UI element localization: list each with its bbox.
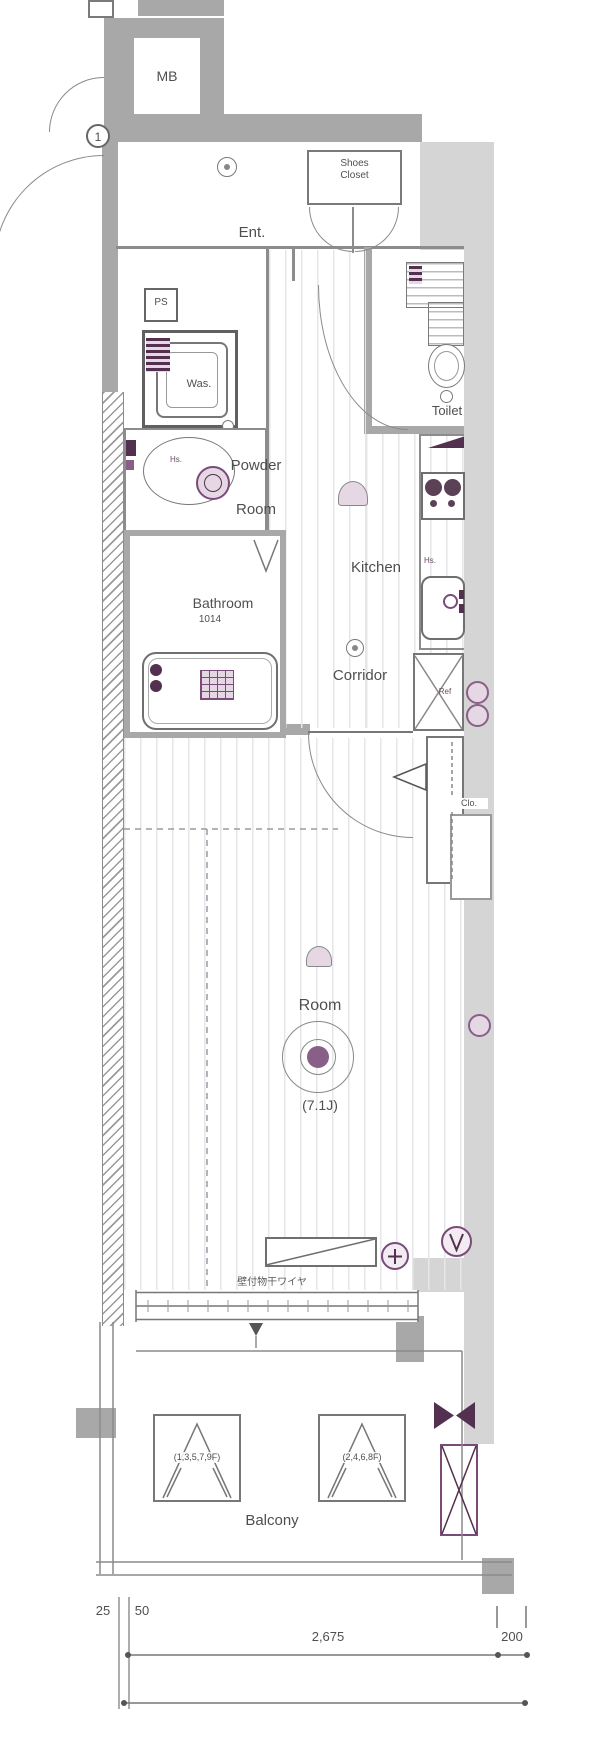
toilet-drain-icon [440, 390, 453, 403]
wall-balcony-corner [482, 1558, 514, 1594]
dim-dot1 [125, 1652, 131, 1658]
washer-faucet-panel-icon [146, 338, 170, 372]
entry-marker-label: 1 [88, 130, 108, 144]
stove-knob2-icon [448, 500, 455, 507]
fridge-label: Ref [430, 687, 460, 697]
louver-right-floors-label: (2,4,6,8F) [320, 1452, 404, 1463]
wall-toilet-bottom [364, 426, 464, 434]
stove-knob1-icon [430, 500, 437, 507]
toilet-bowl-inner-icon [434, 351, 459, 381]
dim-dot3 [524, 1652, 530, 1658]
room-label-corridor: Corridor [308, 667, 412, 685]
shoes-closet-door-center [352, 207, 354, 253]
wall-top-left-notch [88, 0, 114, 18]
vent-bowtie-left-icon [434, 1402, 454, 1429]
wall-top-band [104, 114, 422, 142]
dim-label-right-width: 200 [492, 1629, 532, 1645]
hot-water-label-powder: Hs. [162, 455, 190, 465]
dim-dot2 [495, 1652, 501, 1658]
room-label-shoes-closet: Shoes Closet [309, 158, 400, 182]
sink-faucet-icon [443, 594, 458, 609]
outlet-icon [381, 1242, 409, 1270]
room-label-ps: PS [144, 297, 178, 309]
dim-label-left-offset: 25 [89, 1603, 117, 1619]
wall-vent3-icon [468, 1014, 491, 1037]
dim-dot4 [121, 1700, 127, 1706]
room-label-powder: Powder Room [206, 444, 306, 532]
wall-left-upper [102, 142, 118, 394]
laundry-wire-label: 壁付物干ワイヤ [212, 1277, 332, 1289]
bath-faucet-icon [150, 664, 162, 676]
kitchen-counter-top [419, 434, 464, 436]
hot-water-label-kitchen: Hs. [416, 556, 444, 566]
wall-window-stub [396, 1316, 424, 1362]
wall-balcony-left-stub [76, 1408, 116, 1438]
room-label-kitchen: Kitchen [330, 559, 422, 577]
floor-plan: 1 [0, 0, 600, 1740]
room-label-balcony: Balcony [227, 1512, 317, 1530]
drain-pipe-box [440, 1444, 478, 1536]
ceiling-light-entrance-dot-icon [224, 164, 230, 170]
entry-door-swing-large [0, 155, 104, 265]
kitchen-counter-bottom [419, 648, 464, 650]
powder-fixture-icon [126, 440, 136, 456]
wall-entrance-bottom [116, 246, 464, 249]
dimension-right-ticks [497, 1606, 526, 1628]
dim-label-main-width: 2,675 [288, 1629, 368, 1645]
pipe-duct-box [450, 814, 492, 900]
room-door-leaf [308, 731, 413, 733]
closet-label: Clo. [450, 798, 488, 809]
room-size-label: (7.1J) [283, 1097, 357, 1114]
room-label-washer: Was. [172, 378, 226, 391]
balcony-window [136, 1290, 418, 1322]
toilet-tank-icon [428, 302, 464, 346]
louver-left-floors-label: (1,3,5,7,9F) [155, 1452, 239, 1463]
toilet-cistern-panel-icon [409, 266, 422, 284]
common-area-top-right [420, 142, 494, 250]
wall-vent1-icon [466, 681, 489, 704]
sink-fixture1-icon [459, 590, 464, 599]
corridor-light-dot-icon [352, 645, 358, 651]
stove-icon [421, 472, 465, 520]
wall-top-strip [138, 0, 224, 16]
bathroom-size-label: 1014 [180, 614, 240, 626]
room-label-bathroom: Bathroom [163, 595, 283, 612]
window-counter-box [265, 1237, 377, 1267]
wall-left-hatched [102, 392, 124, 1326]
room-label-mb: MB [134, 68, 200, 85]
ceiling-rose-blob-icon [307, 1046, 329, 1068]
room-label-entrance: Ent. [222, 224, 282, 242]
stove-burner1-icon [425, 479, 442, 496]
room-label-toilet: Toilet [410, 403, 484, 419]
dim-label-left-wall: 50 [128, 1603, 156, 1619]
bath-shower-panel-icon [200, 670, 234, 700]
stove-burner2-icon [444, 479, 461, 496]
bath-faucet2-icon [150, 680, 162, 692]
powder-fixture2-icon [126, 460, 134, 470]
dim-dot5 [522, 1700, 528, 1706]
room-label-main: Room [285, 996, 355, 1015]
wall-vent2-icon [466, 704, 489, 727]
entry-number-marker: 1 [86, 124, 110, 148]
sink-fixture2-icon [459, 604, 464, 613]
window-sill-arrow-icon [249, 1323, 263, 1336]
vent-fan-icon [441, 1226, 472, 1257]
